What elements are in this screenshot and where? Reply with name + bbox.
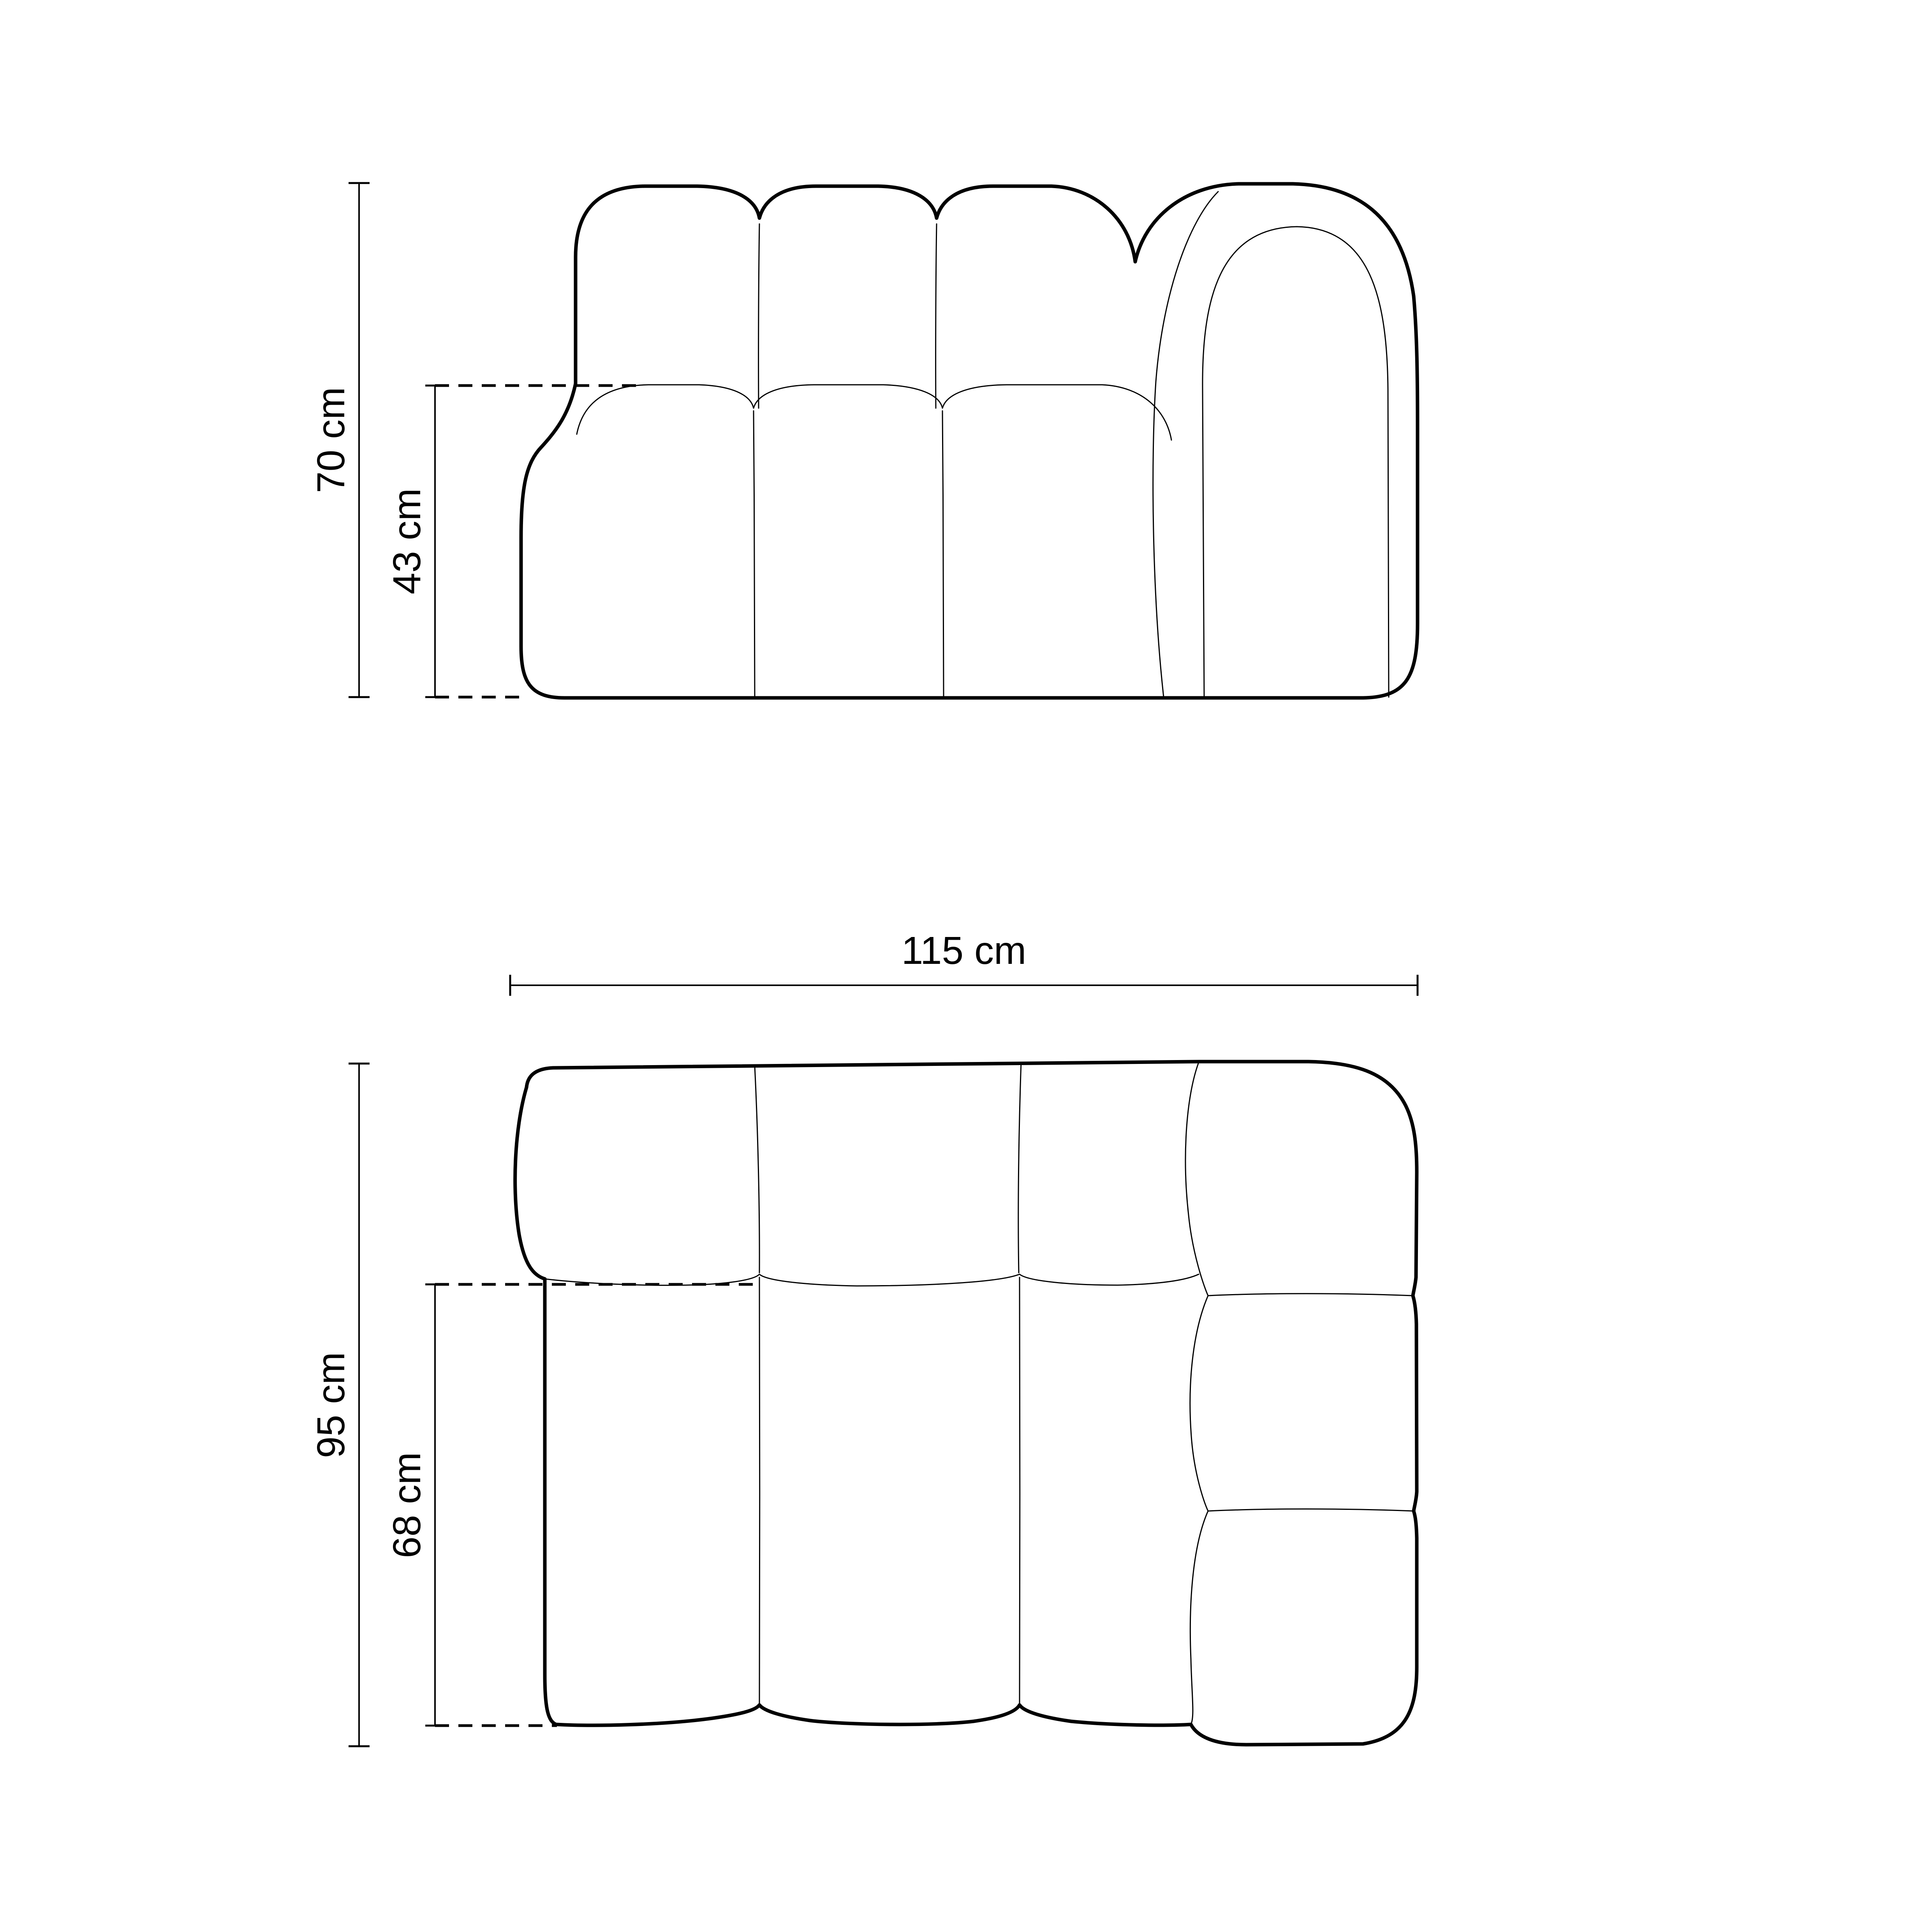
top-backrest-seam-left [755, 1066, 759, 1273]
dimension-label-70cm: 70 cm [309, 387, 353, 493]
front-view: 70 cm 43 cm [309, 183, 1418, 698]
top-corner-module-left-edge [1185, 1062, 1208, 1724]
top-seat-depth-dimension: 68 cm [385, 1284, 445, 1726]
sofa-dimension-diagram: 70 cm 43 cm [0, 0, 1932, 1932]
top-backrest-seam-right [1018, 1062, 1021, 1273]
front-back-cushion-seam-right [936, 224, 937, 408]
front-back-cushions-outline [576, 186, 1135, 385]
front-seat-cushion-tops [577, 385, 1171, 440]
front-seat-height-dimension: 43 cm [385, 386, 445, 697]
dimension-label-68cm: 68 cm [385, 1452, 429, 1558]
front-armrest-outline [1135, 184, 1418, 698]
front-armrest-inner-panel [1203, 227, 1389, 697]
top-seat-seam-right [1020, 1277, 1020, 1703]
front-seat-cushion-seam-left [754, 411, 755, 696]
top-seat-seam-left [759, 1277, 760, 1703]
dimension-label-95cm: 95 cm [309, 1352, 353, 1458]
top-outline [527, 1062, 1417, 1745]
top-seat-front-scallops [556, 1705, 1191, 1725]
top-corner-module-seam-upper [1208, 1294, 1413, 1296]
top-backrest-seat-boundary [545, 1274, 1199, 1286]
front-seat-cushion-seam-right [942, 411, 944, 696]
top-overall-depth-dimension: 95 cm [309, 1064, 370, 1746]
top-seat-left-edge [545, 1279, 556, 1724]
dimension-label-115cm: 115 cm [902, 929, 1027, 972]
front-back-cushion-seam-left [759, 224, 759, 408]
dimension-label-43cm: 43 cm [385, 488, 429, 594]
front-overall-height-dimension: 70 cm [309, 183, 370, 697]
top-overall-width-dimension: 115 cm [510, 929, 1418, 996]
front-armrest-front-edge [1153, 192, 1218, 697]
top-view: 115 cm 95 cm 68 cm [309, 929, 1418, 1746]
top-backrest-left-edge [515, 1087, 545, 1279]
drawing-canvas: 70 cm 43 cm [0, 0, 1932, 1932]
top-corner-module-seam-lower [1208, 1509, 1414, 1511]
